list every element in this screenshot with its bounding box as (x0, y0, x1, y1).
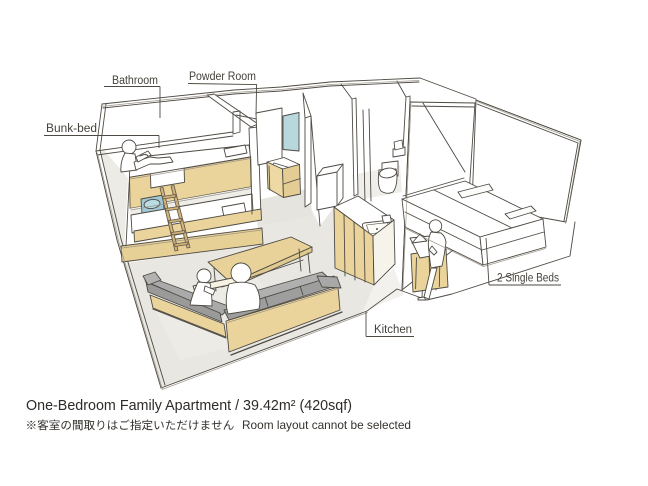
svg-text:Kitchen: Kitchen (374, 324, 412, 336)
svg-text:Room layout cannot be selected: Room layout cannot be selected (242, 418, 411, 432)
svg-text:Bathroom: Bathroom (112, 75, 158, 87)
svg-text:Powder Room: Powder Room (189, 71, 256, 83)
svg-text:Bunk-bed: Bunk-bed (46, 123, 97, 135)
svg-text:One-Bedroom Family Apartment /: One-Bedroom Family Apartment / 39.42m² (… (26, 398, 352, 414)
svg-text:2 Single Beds: 2 Single Beds (497, 273, 559, 285)
